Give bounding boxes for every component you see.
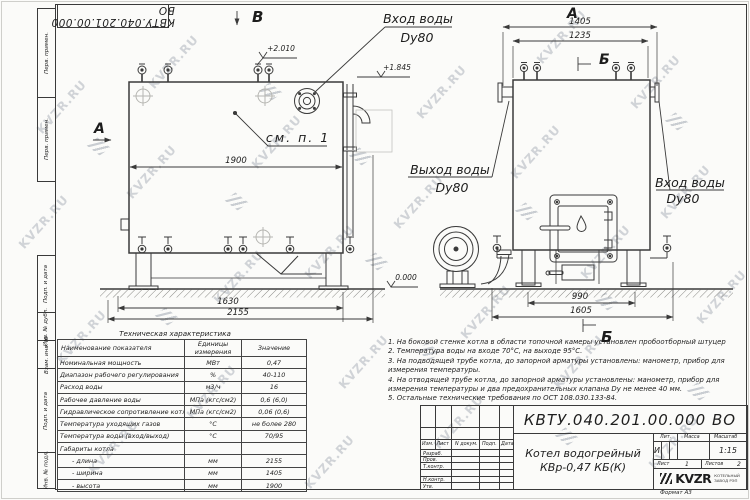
tb-product-name: Котел водогрейный КВр-0,47 КБ(К) [513,433,653,489]
elevation-0000: 0.000 [395,273,417,282]
margin-cell: Подп. и дата [38,256,55,313]
title-block: Изм. Лист N докум. Подп. Дата Разраб. Пр… [420,405,748,490]
table-row: Габариты котла [58,443,307,455]
logo-bars-icon [660,473,672,484]
tb-sheets-label: Листов [705,461,723,467]
view-label-B: В [252,8,263,26]
registration-cross [133,86,275,247]
tb-row-approved: Утв. [423,484,433,490]
tb-row-tcontrol: Т.контр. [423,464,444,470]
tb-row-ncontrol: Н.контр. [423,477,445,483]
boiler-body-front [513,80,650,250]
outlet-label: Выход воды [410,162,490,177]
tb-col-list: Лист [437,441,449,447]
tb-doc-number: КВТУ.040.201.00.000 ВО [513,406,747,433]
view-label-A: А [93,121,105,137]
boiler-base [516,250,646,287]
table-row: Номинальная мощностьМВт0,47 [58,357,307,369]
tb-col-doc: N докум. [455,441,478,447]
outlet-dn: Dy80 [436,180,469,195]
see-note-ref: см. п. 1 [266,130,330,145]
spec-header-row: Наименование показателя Единицы измерени… [58,340,307,357]
top-valves [138,64,273,82]
inlet-label: Вход воды [655,175,725,190]
note-line: 2. Температура воды на входе 70°С, на вы… [388,347,744,356]
spec-header-name: Наименование показателя [58,340,185,357]
tb-lit-label: Лит. [660,434,671,440]
drain-valves-front [493,236,671,258]
dim-1405: 1405 [569,17,591,27]
top-stamp-number: КВТУ.040.201.00.000 ВО [51,4,175,28]
note-line: 1. На боковой стенке котла в области топ… [388,338,744,347]
format-note: Формат А3 [660,490,692,496]
table-row: - длинамм2155 [58,455,307,467]
table-row: - ширинамм1405 [58,467,307,479]
table-row: Расход водым3/ч16 [58,381,307,393]
elevation-2010: +2.010 [267,44,295,53]
spec-header-unit: Единицы измерения [185,340,242,357]
section-label-top: Б [599,52,610,68]
side-pipe [344,84,393,236]
tb-mass-label: Масса [684,434,700,440]
tb-scale-value: 1:15 [709,446,747,455]
note-line: измерения температуры и два предохраните… [388,385,744,394]
tb-lit-value: И [653,446,661,455]
tb-sheets-value: 2 [737,461,741,468]
table-row: Температура уходящих газов°Сне более 280 [58,418,307,430]
top-valves-front [520,63,634,81]
technical-notes: 1. На боковой стенке котла в области топ… [388,338,744,404]
tb-sheet-label: Лист [657,461,669,467]
tb-col-sign: Подп. [482,441,497,447]
note-line: 4. На отводящей трубе котла, до запорной… [388,376,744,385]
tb-row-checked: Пров. [423,457,437,463]
table-row: Диапазон рабочего регулирования%40-110 [58,369,307,381]
inlet-dn: Dy80 [667,191,700,206]
tb-row-developed: Разраб. [423,451,442,457]
left-view-texts: В А Вход воды Dy80 +2.010 +1.845 0.000 с… [93,8,453,318]
spec-header-value: Значение [242,340,307,357]
supports [129,253,348,290]
table-row: - высотамм1900 [58,479,307,491]
side-flange [121,219,129,230]
margin-cell: Подп. и дата [38,369,55,453]
bottom-valves [138,237,354,253]
tb-scale-label: Масштаб [714,434,737,440]
tb-sheet-value: 1 [685,461,689,468]
dim-1630: 1630 [217,297,239,307]
dim-2155: 2155 [227,308,249,318]
top-stamp: КВТУ.040.201.00.000 ВО [57,4,169,28]
note-line: измерения температуры. [388,366,744,375]
tb-col-izm: Изм. [422,441,434,447]
ground-left [100,289,385,298]
inlet-stub [650,83,659,102]
logo-caption: КОТЕЛЬНЫЙ ЗАВОД РЭП [714,474,740,483]
outlet-stub [498,83,513,102]
drawing-sheet: KVZR.RU KVZR.RU KVZR.RU KVZR.RU KVZR.RU … [0,0,750,500]
dim-990: 990 [572,292,588,302]
note-line: 3. На подводящей трубе котла, до запорно… [388,357,744,366]
dim-1235: 1235 [569,31,591,41]
spec-table-title: Техническая характеристика [100,329,250,338]
margin-cell: Перв. примен. [38,98,55,180]
water-inlet-port [295,89,320,114]
spec-table: Наименование показателя Единицы измерени… [57,339,307,492]
margin-cell: Взам. инв. № [38,341,55,369]
elevation-1845: +1.845 [383,63,411,72]
margin-column-bottom: Подп. и дата Инв. № дубл. Взам. инв. № П… [37,255,56,489]
logo-text: KVZR [675,471,711,486]
left-view [100,64,392,298]
furnace-door [540,195,617,262]
margin-cell: Инв. № подл. [38,453,55,487]
margin-column-top: Перв. примен. Перв. примен. [37,8,56,182]
dim-1605: 1605 [570,306,592,316]
tb-col-date: Дата [501,441,514,447]
company-logo: KVZR КОТЕЛЬНЫЙ ЗАВОД РЭП [653,468,747,489]
table-row: Температура воды (вход/выход)°С70/95 [58,430,307,442]
inlet-dn-top: Dy80 [401,30,434,45]
note-line: 5. Остальные технические требования по О… [388,394,744,403]
inlet-label-top: Вход воды [383,11,453,26]
dim-1900: 1900 [225,156,247,166]
table-row: Гидравлическое сопротивление котлаМПа (к… [58,406,307,418]
table-row: Рабочее давление водыМПа (кгс/см2)0,6 (6… [58,393,307,405]
